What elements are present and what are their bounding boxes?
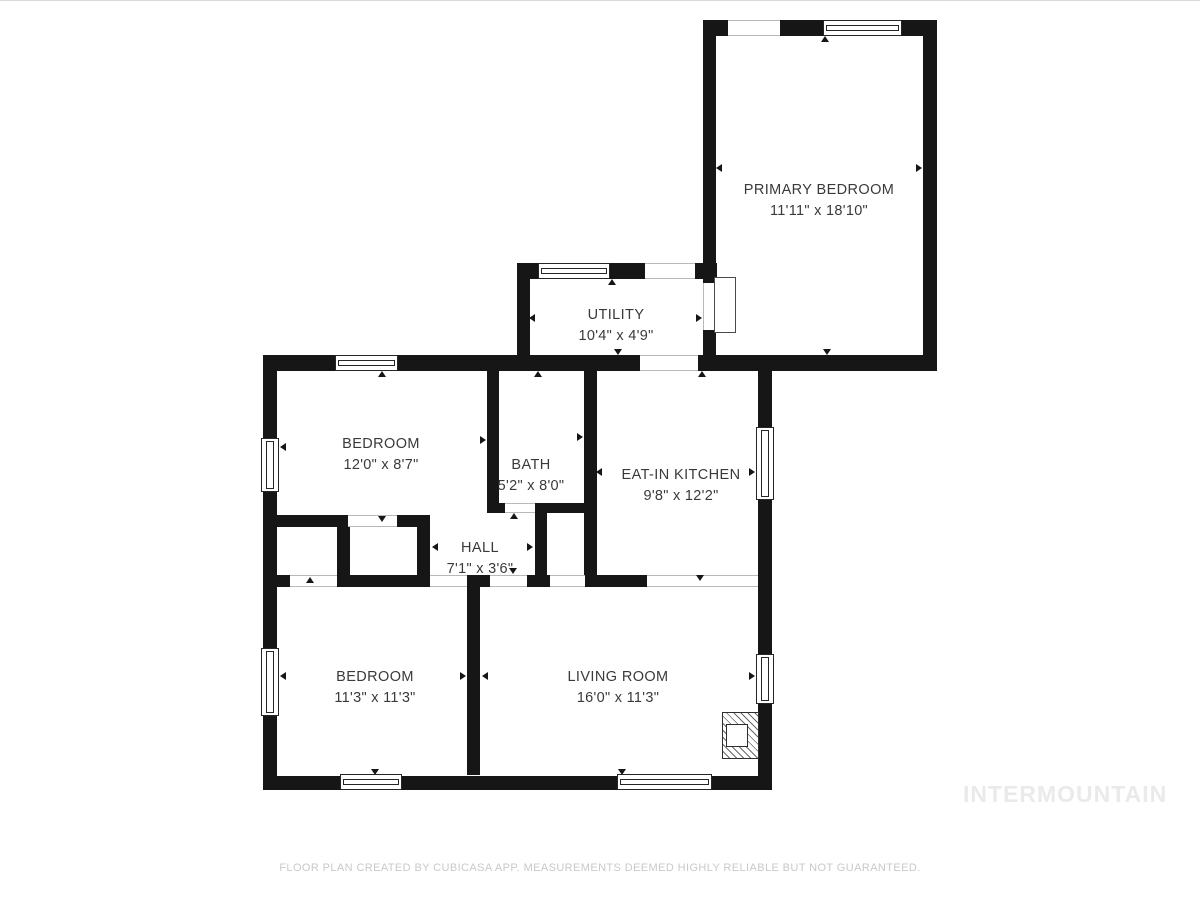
direction-marker	[916, 164, 922, 172]
room-dimensions: 11'3" x 11'3"	[334, 688, 415, 709]
wall-opening	[348, 515, 397, 527]
direction-marker	[698, 371, 706, 377]
room-label-7-bedroom: BEDROOM11'3" x 11'3"	[334, 667, 415, 709]
window	[756, 654, 774, 704]
wall	[758, 500, 772, 654]
wall	[402, 776, 617, 790]
direction-marker	[608, 279, 616, 285]
wall	[703, 20, 716, 283]
window	[261, 648, 279, 716]
window-pane	[541, 268, 607, 274]
room-label-8-living-room: LIVING ROOM16'0" x 11'3"	[567, 667, 668, 709]
direction-marker	[378, 516, 386, 522]
direction-marker	[510, 513, 518, 519]
door-leaf	[714, 277, 736, 333]
room-dimensions: 7'1" x 3'6"	[447, 559, 514, 580]
wall	[487, 503, 505, 513]
window	[617, 774, 712, 790]
floor-plan-page: PRIMARY BEDROOM11'11" x 18'10"UTILITY10'…	[0, 0, 1200, 900]
room-dimensions: 5'2" x 8'0"	[498, 476, 565, 497]
room-name: LIVING ROOM	[567, 667, 668, 688]
direction-marker	[596, 468, 602, 476]
direction-marker	[280, 443, 286, 451]
direction-marker	[480, 436, 486, 444]
wall	[263, 575, 290, 587]
room-name: PRIMARY BEDROOM	[744, 180, 895, 201]
window-pane	[338, 360, 395, 366]
window-pane	[266, 651, 274, 713]
wall-opening	[640, 355, 698, 371]
room-dimensions: 10'4" x 4'9"	[578, 326, 653, 347]
room-label-4-bath: BATH5'2" x 8'0"	[498, 455, 565, 497]
window-pane	[620, 779, 709, 785]
direction-marker	[432, 543, 438, 551]
room-name: BATH	[498, 455, 565, 476]
wall	[923, 20, 937, 371]
direction-marker	[529, 314, 535, 322]
direction-marker	[280, 672, 286, 680]
direction-marker	[823, 349, 831, 355]
direction-marker	[696, 575, 704, 581]
window	[335, 355, 398, 371]
wall	[758, 371, 772, 427]
wall	[698, 355, 937, 371]
room-name: BEDROOM	[342, 434, 420, 455]
window-pane	[826, 25, 899, 31]
wall	[527, 575, 550, 587]
room-label-6-hall: HALL7'1" x 3'6"	[447, 538, 514, 580]
wall	[467, 587, 480, 775]
room-dimensions: 9'8" x 12'2"	[622, 486, 741, 507]
wall	[263, 355, 277, 790]
direction-marker	[749, 672, 755, 680]
watermark: INTERMOUNTAIN	[963, 781, 1167, 808]
room-dimensions: 11'11" x 18'10"	[744, 201, 895, 222]
wall	[585, 575, 647, 587]
wall-opening	[550, 575, 585, 587]
wall-opening	[728, 20, 780, 36]
direction-marker	[527, 543, 533, 551]
room-name: HALL	[447, 538, 514, 559]
room-name: BEDROOM	[334, 667, 415, 688]
wall	[337, 575, 430, 587]
fireplace-notch	[726, 724, 748, 747]
window-pane	[761, 657, 769, 701]
direction-marker	[614, 349, 622, 355]
direction-marker	[577, 433, 583, 441]
room-label-3-bedroom: BEDROOM12'0" x 8'7"	[342, 434, 420, 476]
direction-marker	[696, 314, 702, 322]
direction-marker	[306, 577, 314, 583]
wall	[758, 704, 772, 790]
direction-marker	[716, 164, 722, 172]
wall	[780, 20, 823, 36]
window-pane	[761, 430, 769, 497]
wall-opening	[505, 503, 535, 513]
direction-marker	[749, 468, 755, 476]
room-label-5-eat-in-kitchen: EAT-IN KITCHEN9'8" x 12'2"	[622, 465, 741, 507]
room-label-1-primary-bedroom: PRIMARY BEDROOM11'11" x 18'10"	[744, 180, 895, 222]
room-label-2-utility: UTILITY10'4" x 4'9"	[578, 305, 653, 347]
room-dimensions: 12'0" x 8'7"	[342, 455, 420, 476]
direction-marker	[371, 769, 379, 775]
window	[261, 438, 279, 492]
window	[340, 774, 402, 790]
room-dimensions: 16'0" x 11'3"	[567, 688, 668, 709]
wall-opening	[645, 263, 695, 279]
direction-marker	[618, 769, 626, 775]
direction-marker	[821, 36, 829, 42]
wall	[263, 515, 348, 527]
room-name: UTILITY	[578, 305, 653, 326]
direction-marker	[482, 672, 488, 680]
window-pane	[266, 441, 274, 489]
direction-marker	[534, 371, 542, 377]
wall	[398, 355, 640, 371]
window	[756, 427, 774, 500]
window	[823, 20, 902, 36]
footer-disclaimer: FLOOR PLAN CREATED BY CUBICASA APP. MEAS…	[0, 862, 1200, 874]
room-name: EAT-IN KITCHEN	[622, 465, 741, 486]
floor-plan: PRIMARY BEDROOM11'11" x 18'10"UTILITY10'…	[0, 0, 1200, 900]
window	[538, 263, 610, 279]
direction-marker	[378, 371, 386, 377]
wall	[263, 776, 340, 790]
window-pane	[343, 779, 399, 785]
direction-marker	[460, 672, 466, 680]
wall	[610, 263, 645, 279]
